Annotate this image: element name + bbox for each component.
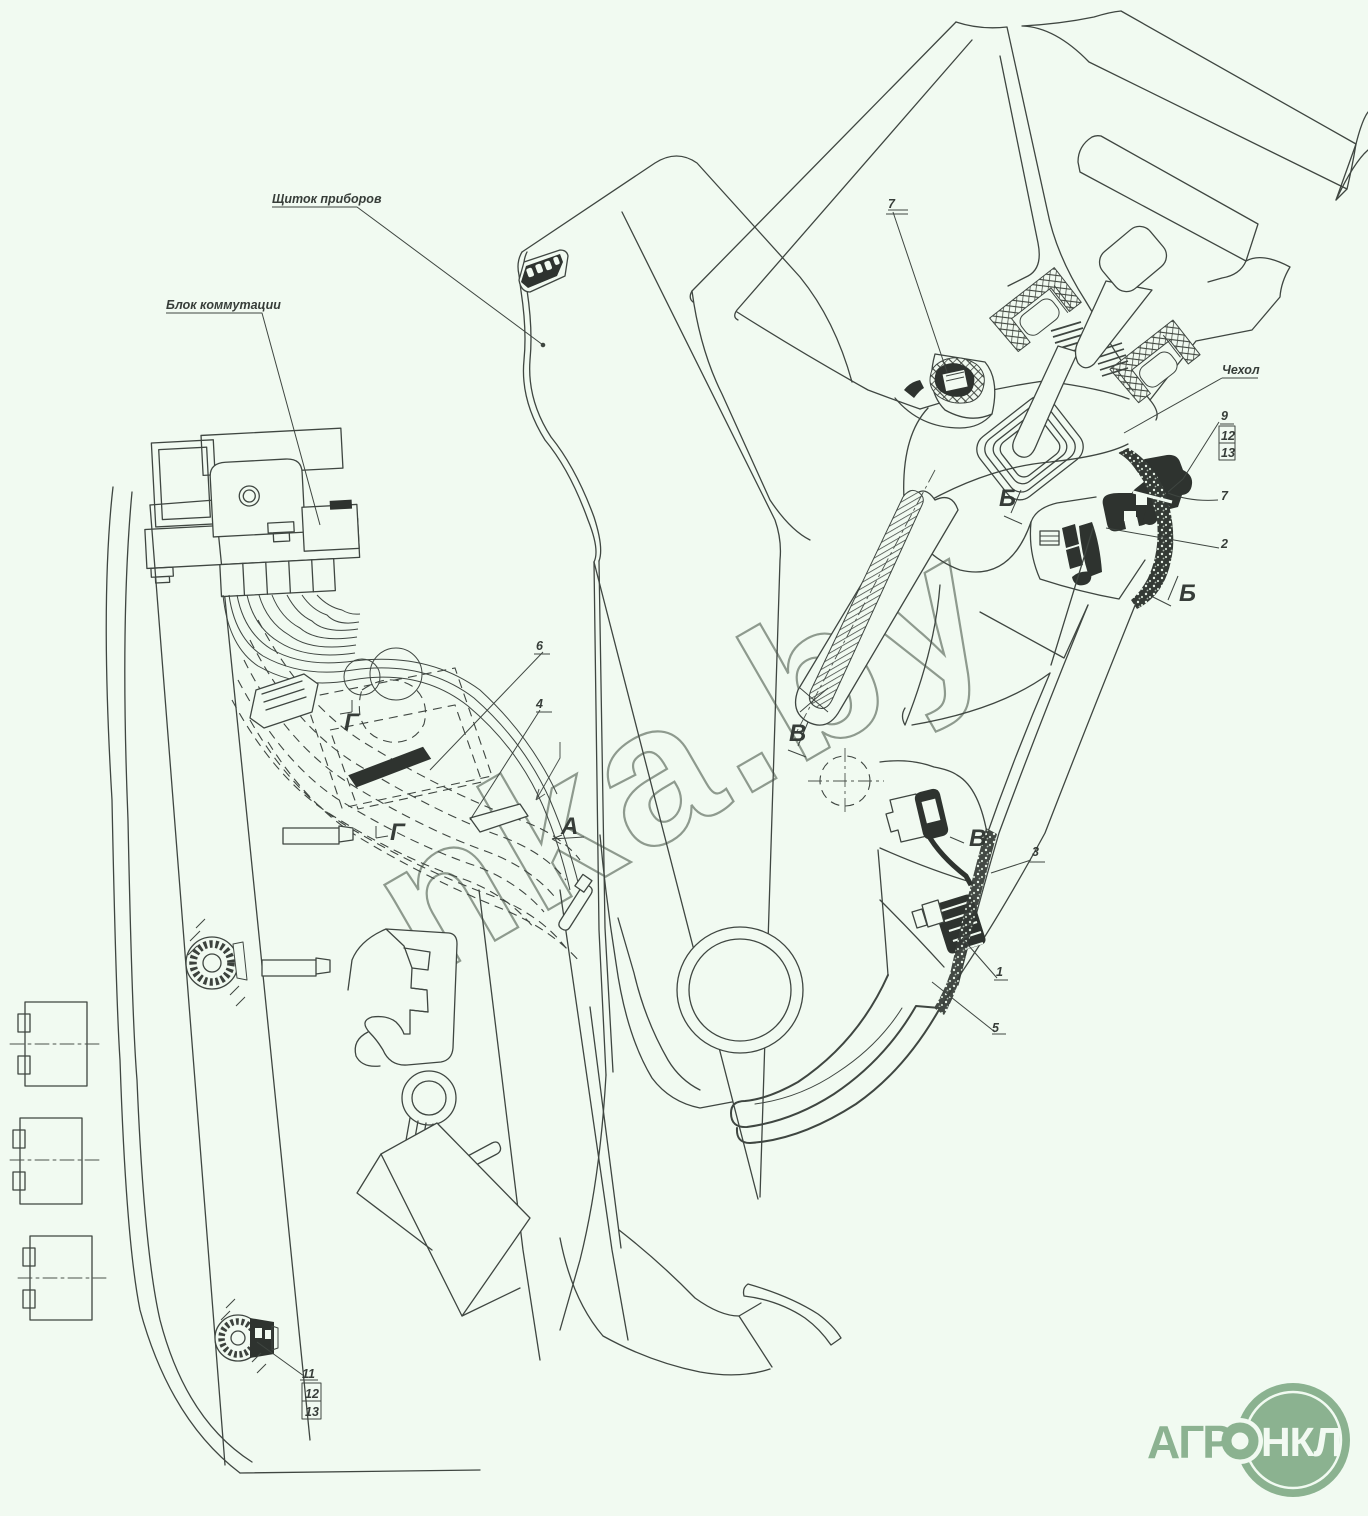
svg-text:В: В — [969, 825, 986, 852]
svg-text:Блок коммутации: Блок коммутации — [166, 298, 281, 312]
svg-text:12: 12 — [1221, 429, 1235, 443]
svg-text:4: 4 — [535, 697, 543, 711]
svg-text:В: В — [789, 720, 806, 747]
svg-text:Г: Г — [344, 709, 360, 736]
svg-text:13: 13 — [305, 1405, 319, 1419]
svg-text:А: А — [560, 813, 578, 840]
svg-text:Щиток приборов: Щиток приборов — [272, 192, 382, 206]
svg-text:Б: Б — [1179, 580, 1196, 607]
svg-text:13: 13 — [1221, 446, 1235, 460]
svg-text:9: 9 — [1221, 409, 1228, 423]
svg-text:Б: Б — [999, 485, 1016, 512]
svg-text:Г: Г — [390, 819, 406, 846]
svg-text:Чехол: Чехол — [1222, 363, 1260, 377]
svg-text:2: 2 — [1220, 537, 1228, 551]
svg-text:5: 5 — [992, 1021, 1000, 1035]
svg-text:3: 3 — [1032, 845, 1039, 859]
svg-text:1: 1 — [996, 965, 1003, 979]
svg-text:7: 7 — [888, 197, 896, 211]
svg-text:АГР: АГР — [1147, 1416, 1232, 1468]
svg-text:НКЛ: НКЛ — [1261, 1419, 1341, 1465]
svg-text:6: 6 — [536, 639, 544, 653]
svg-text:7: 7 — [1221, 489, 1229, 503]
svg-text:11: 11 — [302, 1367, 315, 1381]
svg-text:12: 12 — [305, 1387, 319, 1401]
